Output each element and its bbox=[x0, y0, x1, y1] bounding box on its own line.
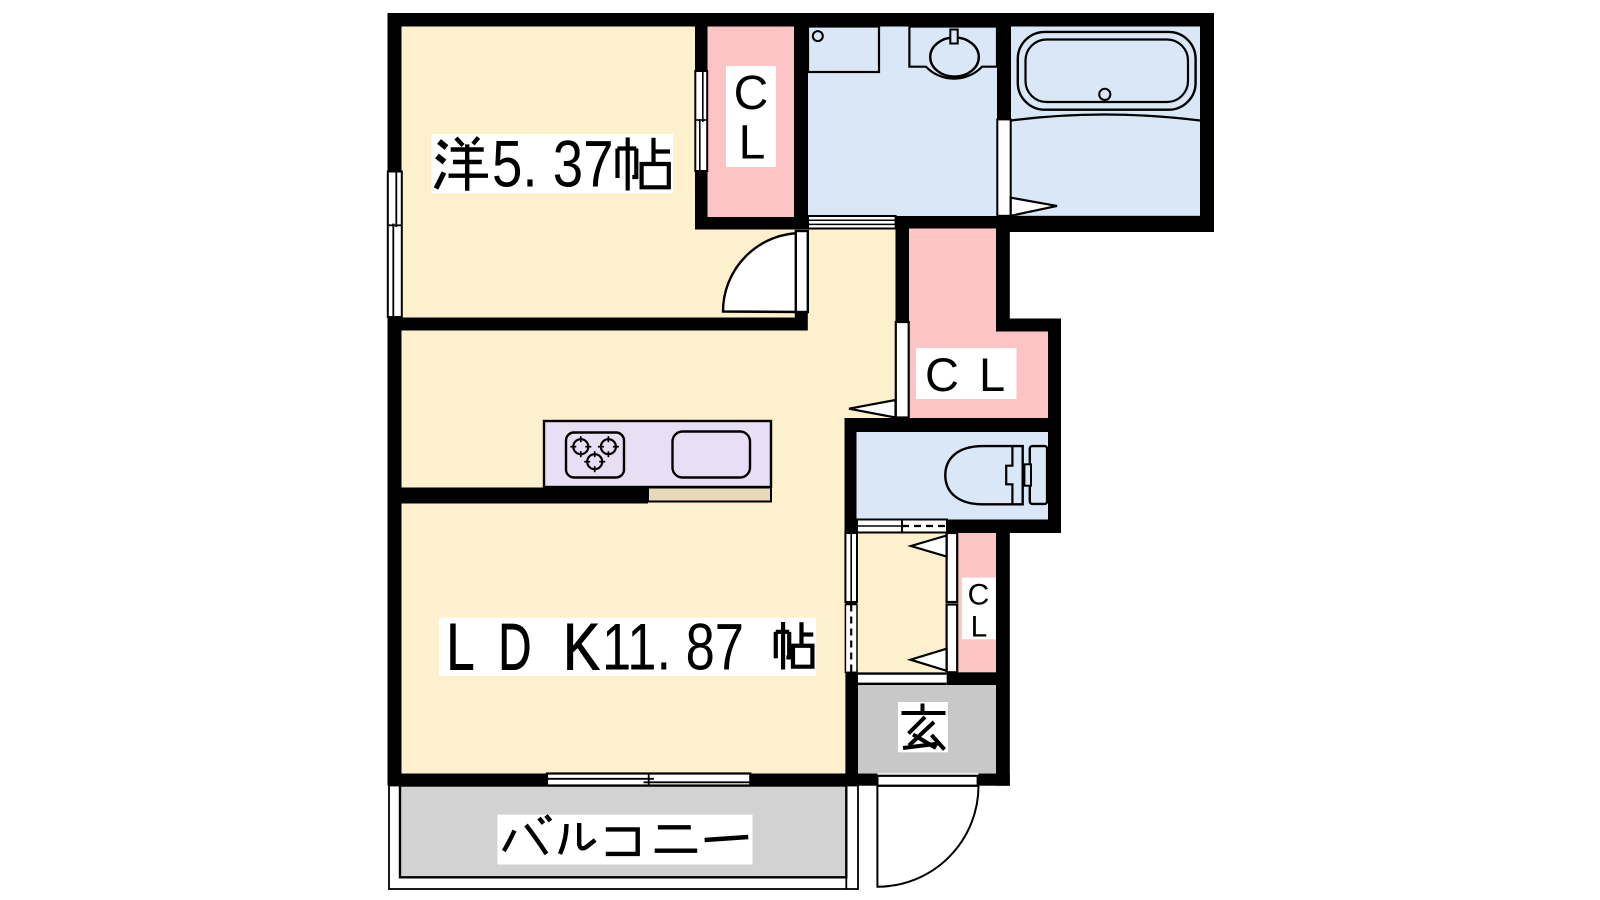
svg-text:K: K bbox=[563, 610, 600, 684]
svg-text:5. 37: 5. 37 bbox=[492, 127, 614, 201]
svg-text:C: C bbox=[968, 579, 990, 612]
svg-text:11. 87: 11. 87 bbox=[602, 610, 744, 684]
svg-text:L: L bbox=[979, 348, 1005, 401]
svg-text:C: C bbox=[734, 67, 769, 120]
svg-text:C: C bbox=[925, 348, 959, 401]
svg-text:L: L bbox=[447, 610, 475, 684]
svg-text:D: D bbox=[498, 610, 531, 684]
svg-text:L: L bbox=[739, 117, 766, 170]
svg-text:L: L bbox=[971, 611, 988, 644]
